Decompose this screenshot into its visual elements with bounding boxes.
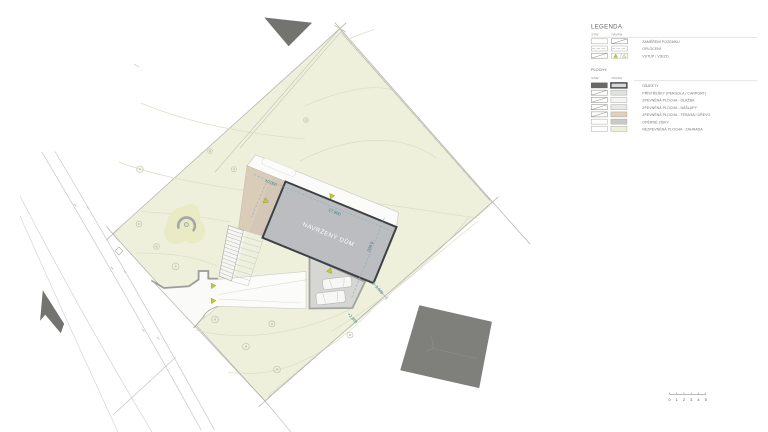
- svg-text:3: 3: [690, 397, 693, 402]
- svg-text:OPLOCENÍ: OPLOCENÍ: [642, 47, 661, 51]
- svg-text:ZPEVNĚNÁ PLOCHA - TERASA / DŘ: ZPEVNĚNÁ PLOCHA - TERASA / DŘEVO: [642, 112, 710, 117]
- svg-text:ZPEVNĚNÁ PLOCHA - NÁŠLAPY: ZPEVNĚNÁ PLOCHA - NÁŠLAPY: [642, 105, 697, 110]
- svg-text:OPĚRNÉ ZÍDKY: OPĚRNÉ ZÍDKY: [642, 119, 669, 124]
- svg-text:5: 5: [705, 397, 708, 402]
- svg-text:0: 0: [668, 397, 671, 402]
- svg-text:STAV: STAV: [591, 76, 598, 80]
- svg-text:ZPEVNĚNÁ PLOCHA - DLAŽBA: ZPEVNĚNÁ PLOCHA - DLAŽBA: [642, 98, 695, 103]
- svg-text:OBJEKTY: OBJEKTY: [642, 84, 659, 88]
- svg-text:PŘÍSTŘEŠKY (PERGOLA / CARPORT): PŘÍSTŘEŠKY (PERGOLA / CARPORT): [642, 90, 706, 95]
- svg-text:1: 1: [676, 397, 679, 402]
- svg-text:VSTUP / VJEZD: VSTUP / VJEZD: [642, 54, 669, 58]
- svg-text:4: 4: [697, 397, 700, 402]
- svg-text:LEGENDA: LEGENDA: [591, 24, 623, 31]
- svg-text:STAV: STAV: [591, 33, 598, 37]
- svg-text:NÁVRH: NÁVRH: [612, 76, 623, 80]
- svg-text:NÁVRH: NÁVRH: [612, 33, 623, 37]
- svg-text:NEZPEVNĚNÁ PLOCHA - ZAHRADA: NEZPEVNĚNÁ PLOCHA - ZAHRADA: [642, 127, 703, 132]
- svg-text:ZAMĚŘENÍ POZEMKU: ZAMĚŘENÍ POZEMKU: [642, 39, 680, 44]
- svg-text:PLOCHY:: PLOCHY:: [591, 68, 607, 72]
- svg-text:2: 2: [683, 397, 686, 402]
